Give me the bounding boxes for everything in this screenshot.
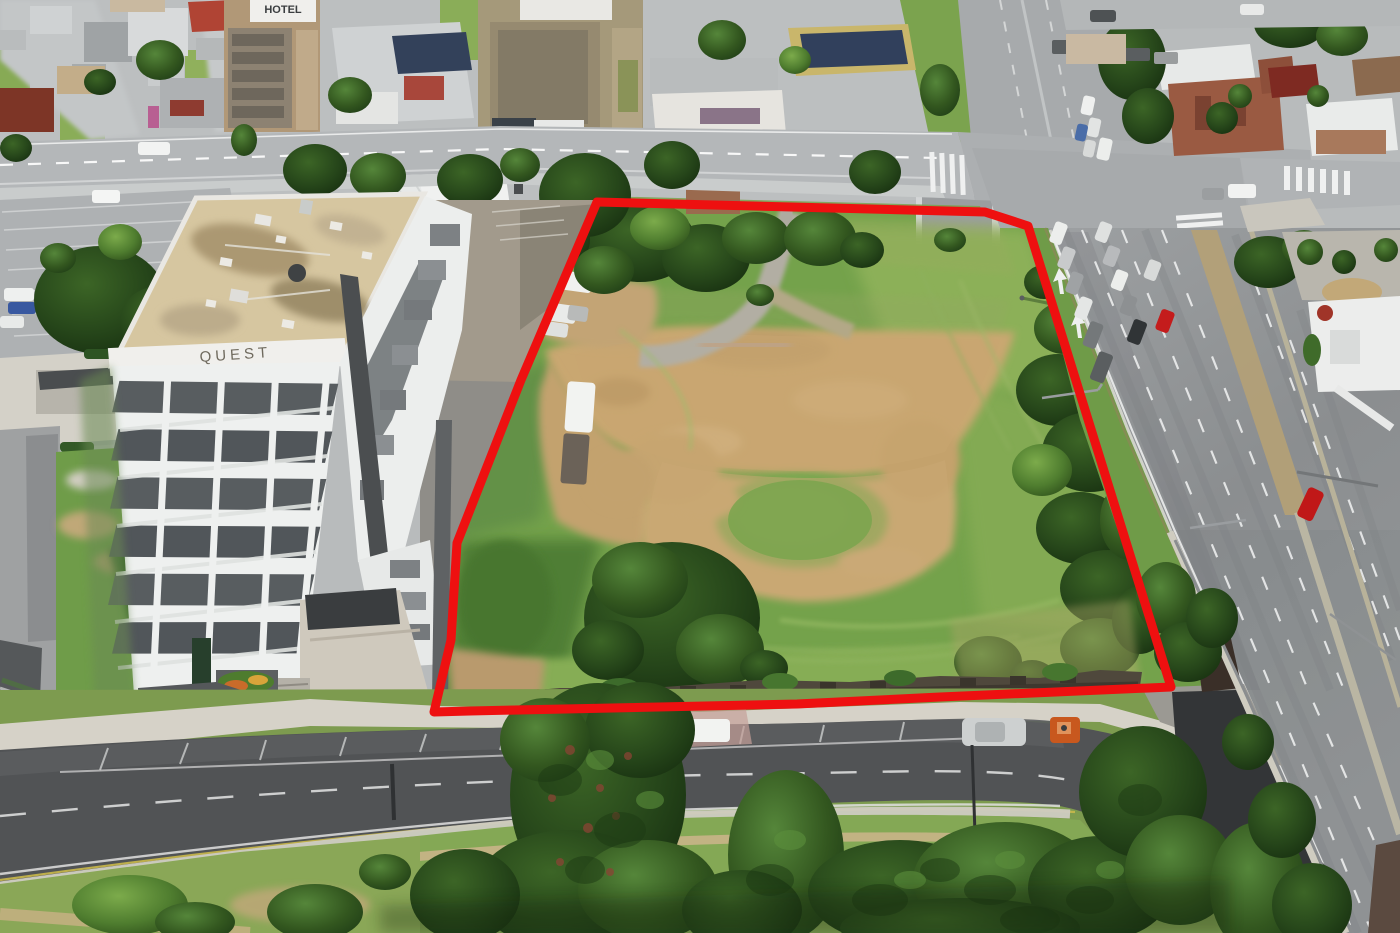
- svg-text:HOTEL: HOTEL: [264, 4, 302, 16]
